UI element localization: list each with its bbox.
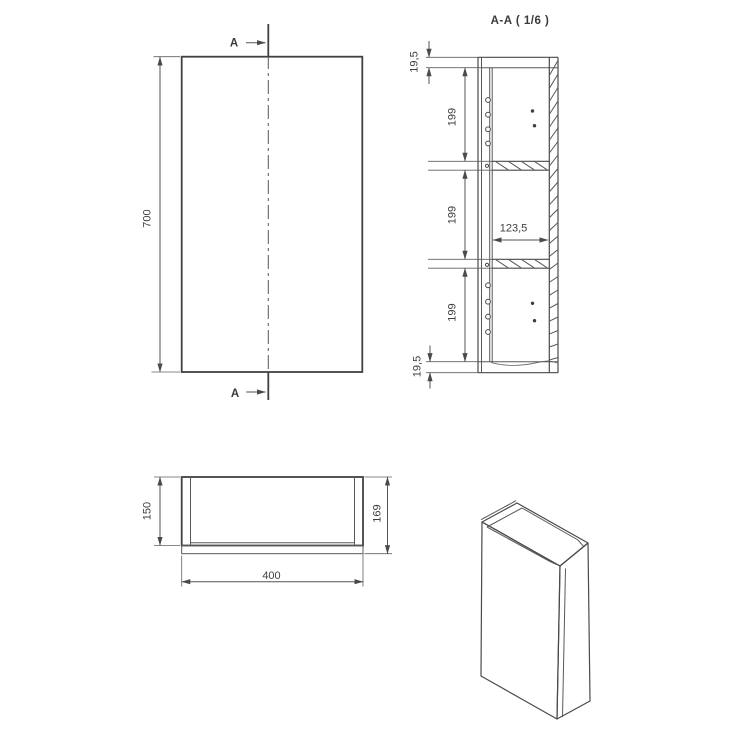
cad-drawing: A A 700 A-A ( 1/6 ) <box>0 0 740 740</box>
dim-169: 169 <box>365 477 393 554</box>
dim-400-label: 400 <box>262 570 280 582</box>
shelf-2-hatch <box>496 260 547 268</box>
iso-side-top-step <box>578 540 584 546</box>
iso-side-face <box>557 543 590 719</box>
dim-199-2-label: 199 <box>447 206 459 224</box>
dim-19-5-top-label: 19,5 <box>409 51 421 72</box>
dim-199-2: 199 <box>447 170 466 259</box>
dim-199-3-label: 199 <box>447 303 459 321</box>
front-outline <box>182 57 363 372</box>
iso-door-face <box>481 522 560 719</box>
dim-150-label: 150 <box>142 502 154 520</box>
dim-400: 400 <box>182 547 363 587</box>
dim-700-label: 700 <box>142 209 154 227</box>
top-view: 150 169 400 <box>142 477 393 587</box>
dim-19-5-bottom: 19,5 <box>412 346 479 389</box>
dim-199-3: 199 <box>447 268 466 362</box>
plan-door-strip <box>182 546 363 554</box>
dim-123-5: 123,5 <box>493 223 548 241</box>
section-marker-label-top: A <box>230 38 238 50</box>
dim-150: 150 <box>142 477 181 546</box>
shelf-1-hatch <box>496 162 547 170</box>
dim-169-label: 169 <box>372 504 384 522</box>
dim-199-1-label: 199 <box>447 108 459 126</box>
door-section-hatch <box>549 61 558 360</box>
isometric-view <box>481 501 590 719</box>
iso-door-top-edge <box>481 501 516 520</box>
dim-123-5-label: 123,5 <box>500 223 528 235</box>
section-view: A-A ( 1/6 ) <box>409 15 559 389</box>
iso-top-panel-back <box>522 508 578 540</box>
dim-19-5-top: 19,5 <box>409 41 482 84</box>
front-view: A A 700 <box>142 24 363 400</box>
iso-door-edge-band <box>563 569 566 718</box>
iso-top-panel-front <box>487 508 522 527</box>
plan-carcass-outline <box>182 477 363 546</box>
dim-199-1: 199 <box>447 68 466 162</box>
hinge-dots <box>531 109 536 322</box>
section-title: A-A ( 1/6 ) <box>491 15 550 27</box>
dim-19-5-bottom-label: 19,5 <box>412 356 424 377</box>
dim-700: 700 <box>142 57 181 372</box>
iso-top-panel-inner <box>487 527 550 562</box>
section-marker-label-bottom: A <box>231 388 239 400</box>
technical-drawing-canvas: A A 700 A-A ( 1/6 ) <box>0 0 740 740</box>
